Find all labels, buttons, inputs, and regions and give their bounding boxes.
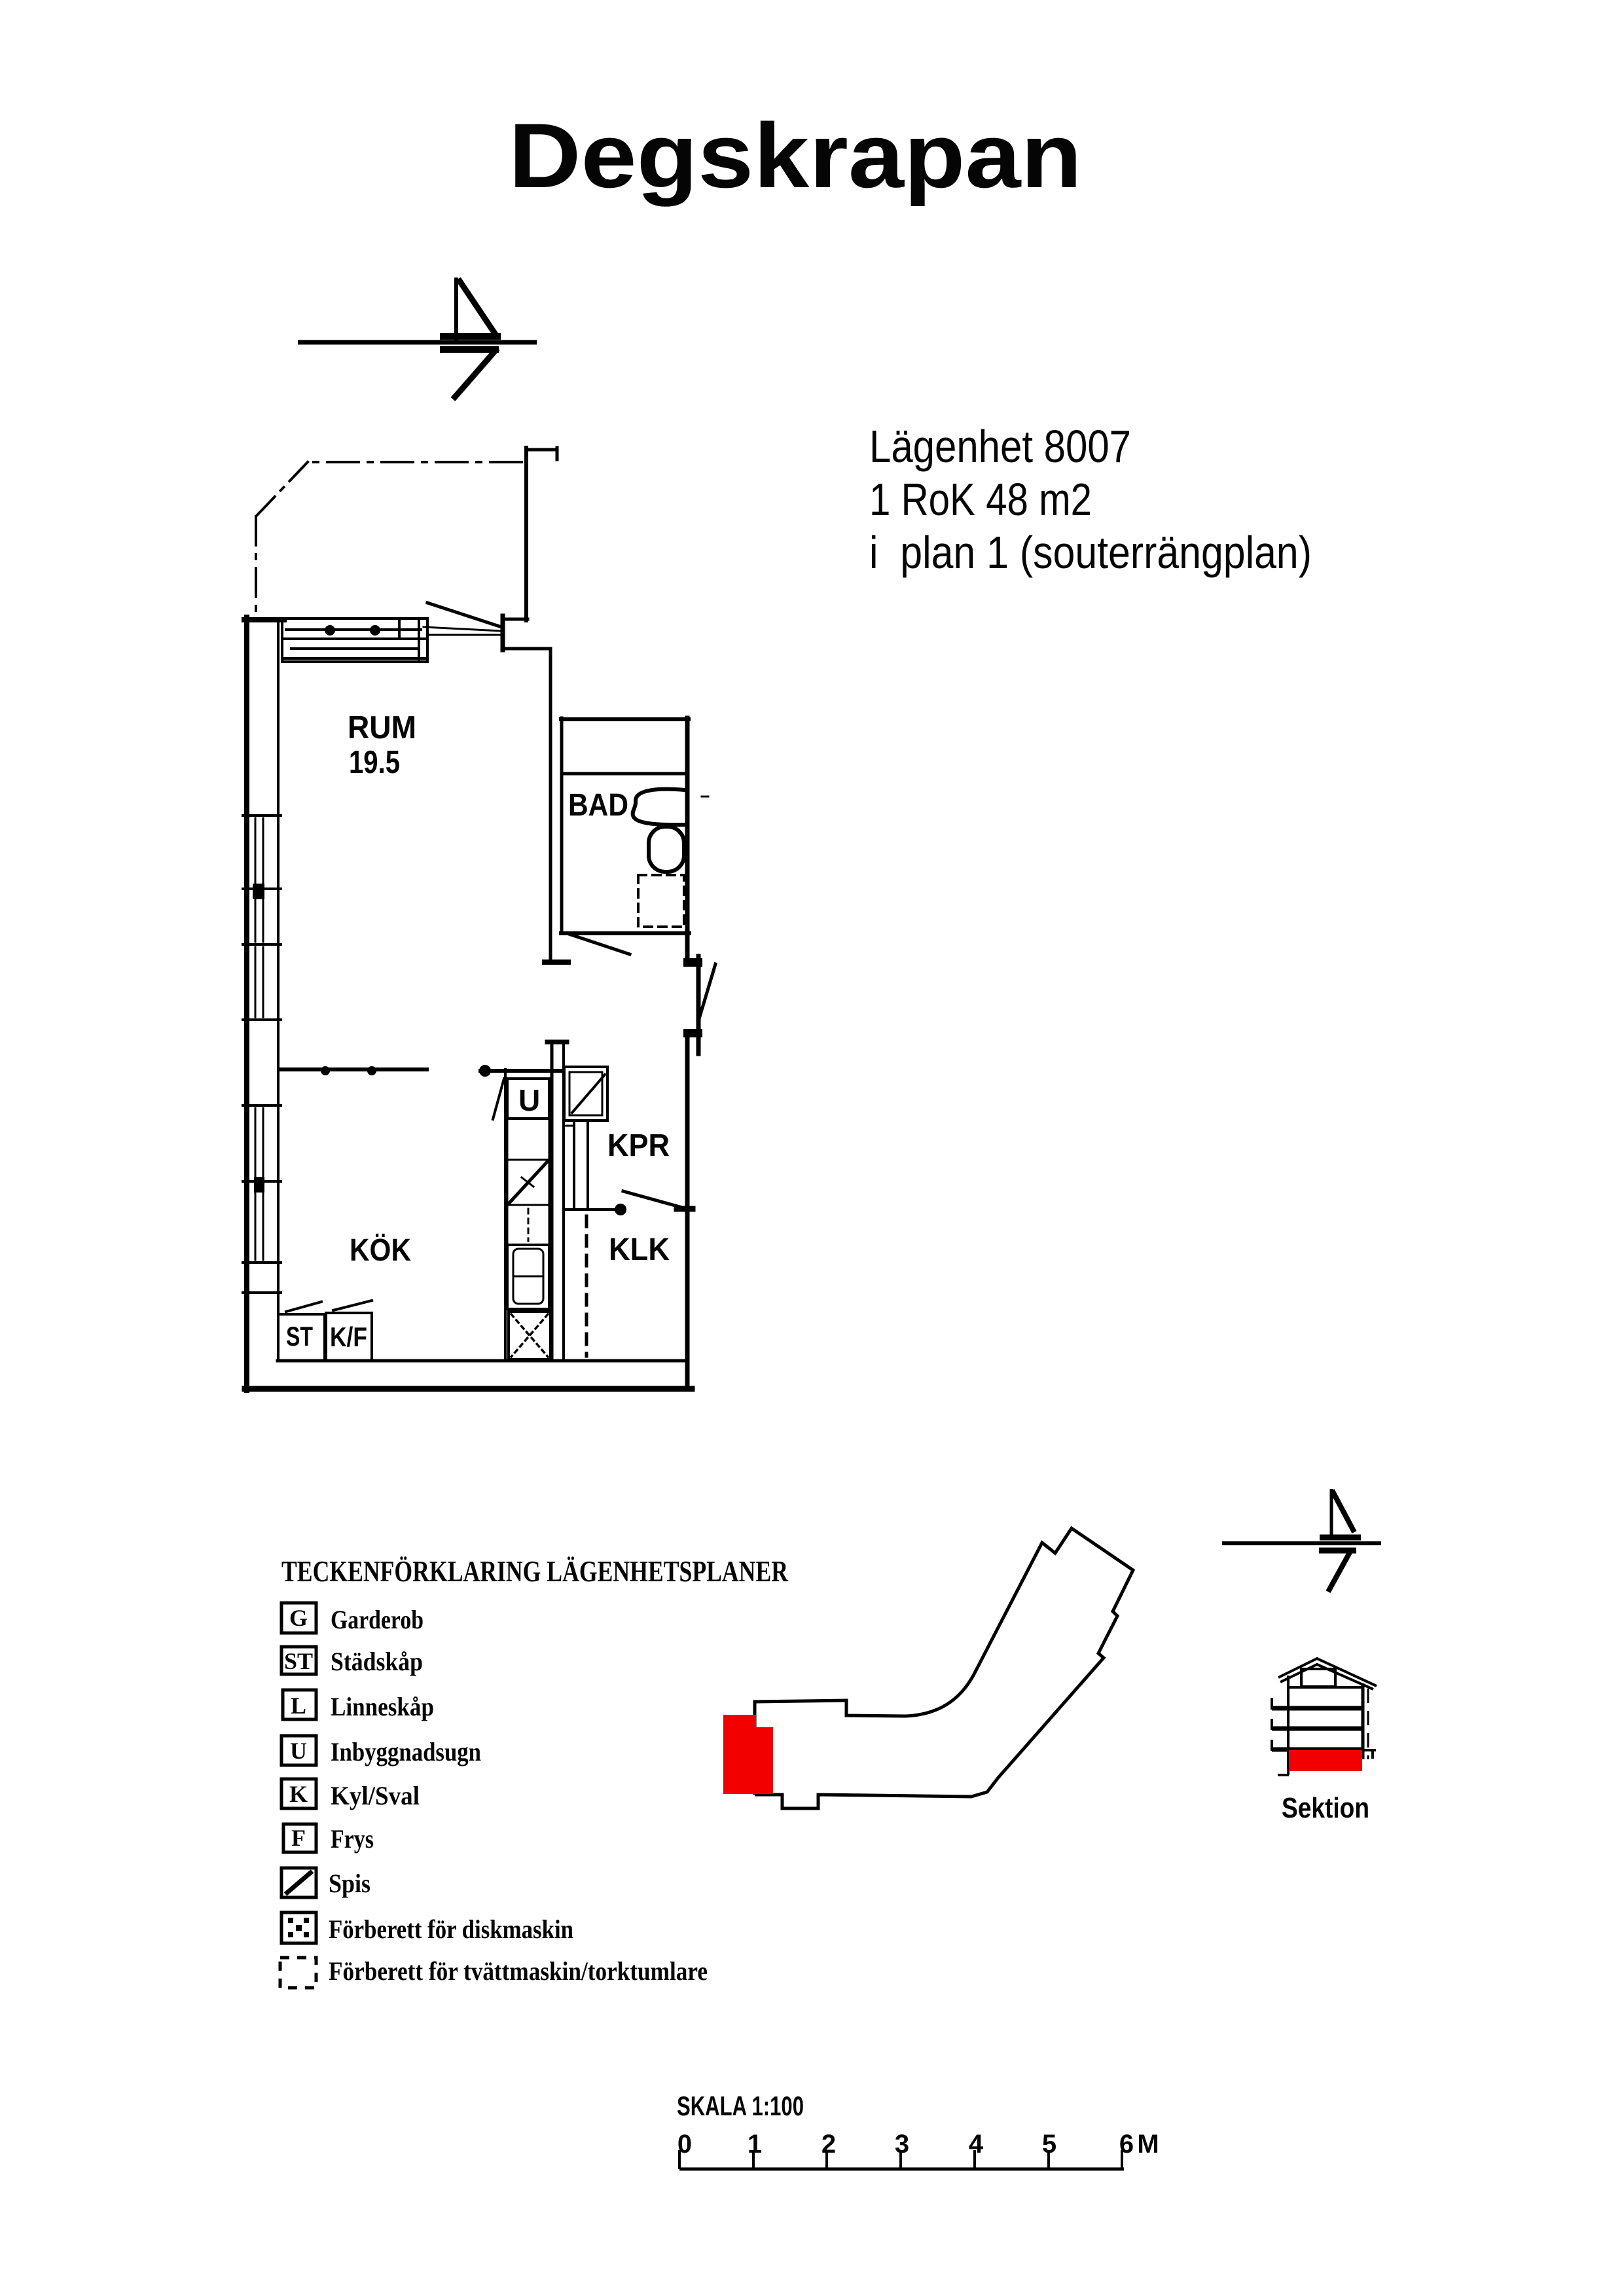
- svg-text:1: 1: [748, 2130, 762, 2159]
- svg-text:RUM: RUM: [348, 710, 416, 745]
- svg-text:K: K: [289, 1781, 308, 1807]
- svg-text:Lägenhet 8007: Lägenhet 8007: [869, 421, 1131, 472]
- svg-text:Linneskåp: Linneskåp: [331, 1692, 434, 1721]
- svg-text:6: 6: [1119, 2130, 1134, 2159]
- svg-text:3: 3: [895, 2130, 909, 2159]
- svg-text:19.5: 19.5: [349, 745, 400, 780]
- svg-text:5: 5: [1042, 2130, 1056, 2159]
- svg-text:4: 4: [969, 2130, 984, 2159]
- svg-text:SKALA 1:100: SKALA 1:100: [677, 2090, 804, 2121]
- svg-text:KÖK: KÖK: [350, 1233, 411, 1268]
- svg-text:TECKENFÖRKLARING LÄGENHETSPLAN: TECKENFÖRKLARING LÄGENHETSPLANER: [281, 1555, 788, 1588]
- svg-text:ST: ST: [286, 1321, 313, 1352]
- svg-text:U: U: [290, 1738, 307, 1764]
- svg-text:K/F: K/F: [330, 1321, 367, 1352]
- svg-text:Kyl/Sval: Kyl/Sval: [331, 1781, 420, 1810]
- svg-text:Städskåp: Städskåp: [331, 1647, 423, 1676]
- svg-text:Inbyggnadsugn: Inbyggnadsugn: [331, 1737, 481, 1767]
- svg-text:Spis: Spis: [329, 1869, 370, 1898]
- svg-text:Sektion: Sektion: [1282, 1792, 1369, 1824]
- svg-text:Förberett för tvättmaskin/tork: Förberett för tvättmaskin/torktumlare: [329, 1956, 708, 1986]
- svg-text:M: M: [1137, 2130, 1159, 2159]
- svg-text:G: G: [289, 1605, 308, 1631]
- svg-text:0: 0: [677, 2130, 692, 2159]
- svg-text:Garderob: Garderob: [331, 1605, 424, 1634]
- svg-text:BAD: BAD: [568, 788, 628, 823]
- svg-text:L: L: [291, 1693, 306, 1719]
- svg-text:Förberett för diskmaskin: Förberett för diskmaskin: [329, 1914, 573, 1944]
- svg-text:ST: ST: [284, 1648, 313, 1674]
- svg-text:KLK: KLK: [609, 1232, 670, 1267]
- svg-text:2: 2: [821, 2130, 836, 2159]
- svg-text:U: U: [518, 1083, 540, 1117]
- svg-text:1 RoK 48 m2: 1 RoK 48 m2: [869, 474, 1092, 525]
- svg-text:Degskrapan: Degskrapan: [509, 104, 1082, 207]
- svg-text:F: F: [291, 1825, 306, 1851]
- svg-text:KPR: KPR: [607, 1128, 670, 1163]
- svg-text:i plan 1 (souterrängplan): i plan 1 (souterrängplan): [869, 527, 1312, 578]
- svg-text:Frys: Frys: [331, 1824, 374, 1854]
